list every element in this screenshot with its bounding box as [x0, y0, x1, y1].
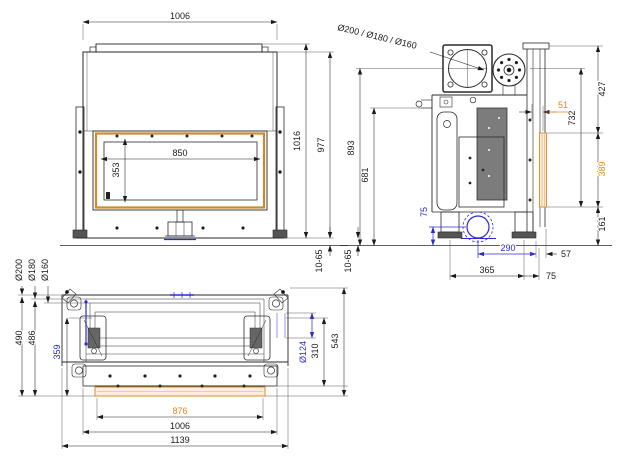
side-dim-389: 389 — [597, 161, 607, 176]
plan-dim-1006: 1006 — [170, 421, 190, 431]
side-view-geometry — [340, 43, 612, 246]
glass-side-profile — [540, 133, 547, 207]
side-dim-51: 51 — [558, 100, 568, 110]
side-flue-label: Ø200 / Ø180 / Ø160 — [337, 22, 418, 51]
plan-view-geometry — [62, 289, 288, 396]
side-dim-893: 893 — [346, 140, 356, 155]
front-dim-1016: 1016 — [292, 131, 302, 151]
plan-dim-543: 543 — [330, 333, 340, 348]
plan-dia-160: Ø160 — [40, 259, 50, 281]
front-right-foot — [273, 230, 287, 238]
side-dim-732: 732 — [567, 110, 577, 125]
side-panel — [437, 112, 457, 210]
side-dim-10-65: 10-65 — [343, 249, 353, 272]
damper-knob — [416, 101, 422, 107]
air-intake — [467, 216, 489, 238]
plan-dia-200: Ø200 — [14, 259, 24, 281]
front-left-foot — [73, 230, 87, 238]
door-latch — [106, 192, 110, 199]
side-view-dimensions: Ø200 / Ø180 / Ø160 893 681 75 10-65 732 — [337, 22, 607, 281]
technical-drawing: 1006 850 353 1016 977 10-65 — [0, 0, 624, 460]
plan-dia-180: Ø180 — [27, 259, 37, 281]
plan-dim-1139: 1139 — [170, 435, 189, 445]
side-dim-75-base: 75 — [546, 271, 556, 281]
side-rear-foot — [438, 232, 462, 238]
side-dim-161: 161 — [597, 216, 607, 231]
center-support — [168, 222, 192, 236]
plan-dim-486: 486 — [27, 330, 37, 345]
front-dim-1006: 1006 — [170, 11, 190, 21]
side-dim-75-intake: 75 — [419, 207, 429, 217]
side-dim-681: 681 — [360, 167, 370, 182]
front-dim-353: 353 — [111, 162, 121, 177]
plan-dim-490: 490 — [14, 330, 24, 345]
inner-plate — [477, 108, 507, 200]
plan-view: Ø200 Ø180 Ø160 490 486 359 Ø124 — [14, 259, 348, 449]
side-dim-427: 427 — [597, 81, 607, 96]
plan-dim-124: Ø124 — [298, 341, 308, 363]
side-dim-290: 290 — [500, 243, 515, 253]
front-view-geometry — [60, 44, 348, 246]
side-dim-365: 365 — [479, 265, 494, 275]
plan-dim-310: 310 — [310, 343, 320, 358]
side-view: Ø200 / Ø180 / Ø160 893 681 75 10-65 732 — [337, 22, 612, 281]
side-dim-57: 57 — [561, 249, 571, 259]
plan-dim-876: 876 — [172, 406, 187, 416]
drawing-page: 1006 850 353 1016 977 10-65 — [0, 0, 624, 460]
front-dim-10-65: 10-65 — [314, 249, 324, 272]
side-front-foot — [512, 232, 536, 238]
front-dim-850: 850 — [172, 148, 187, 158]
glass-door-orange-frame — [96, 134, 264, 208]
front-dim-977: 977 — [316, 137, 326, 152]
plan-dim-359: 359 — [52, 344, 62, 359]
front-view: 1006 850 353 1016 977 10-65 — [60, 11, 348, 273]
